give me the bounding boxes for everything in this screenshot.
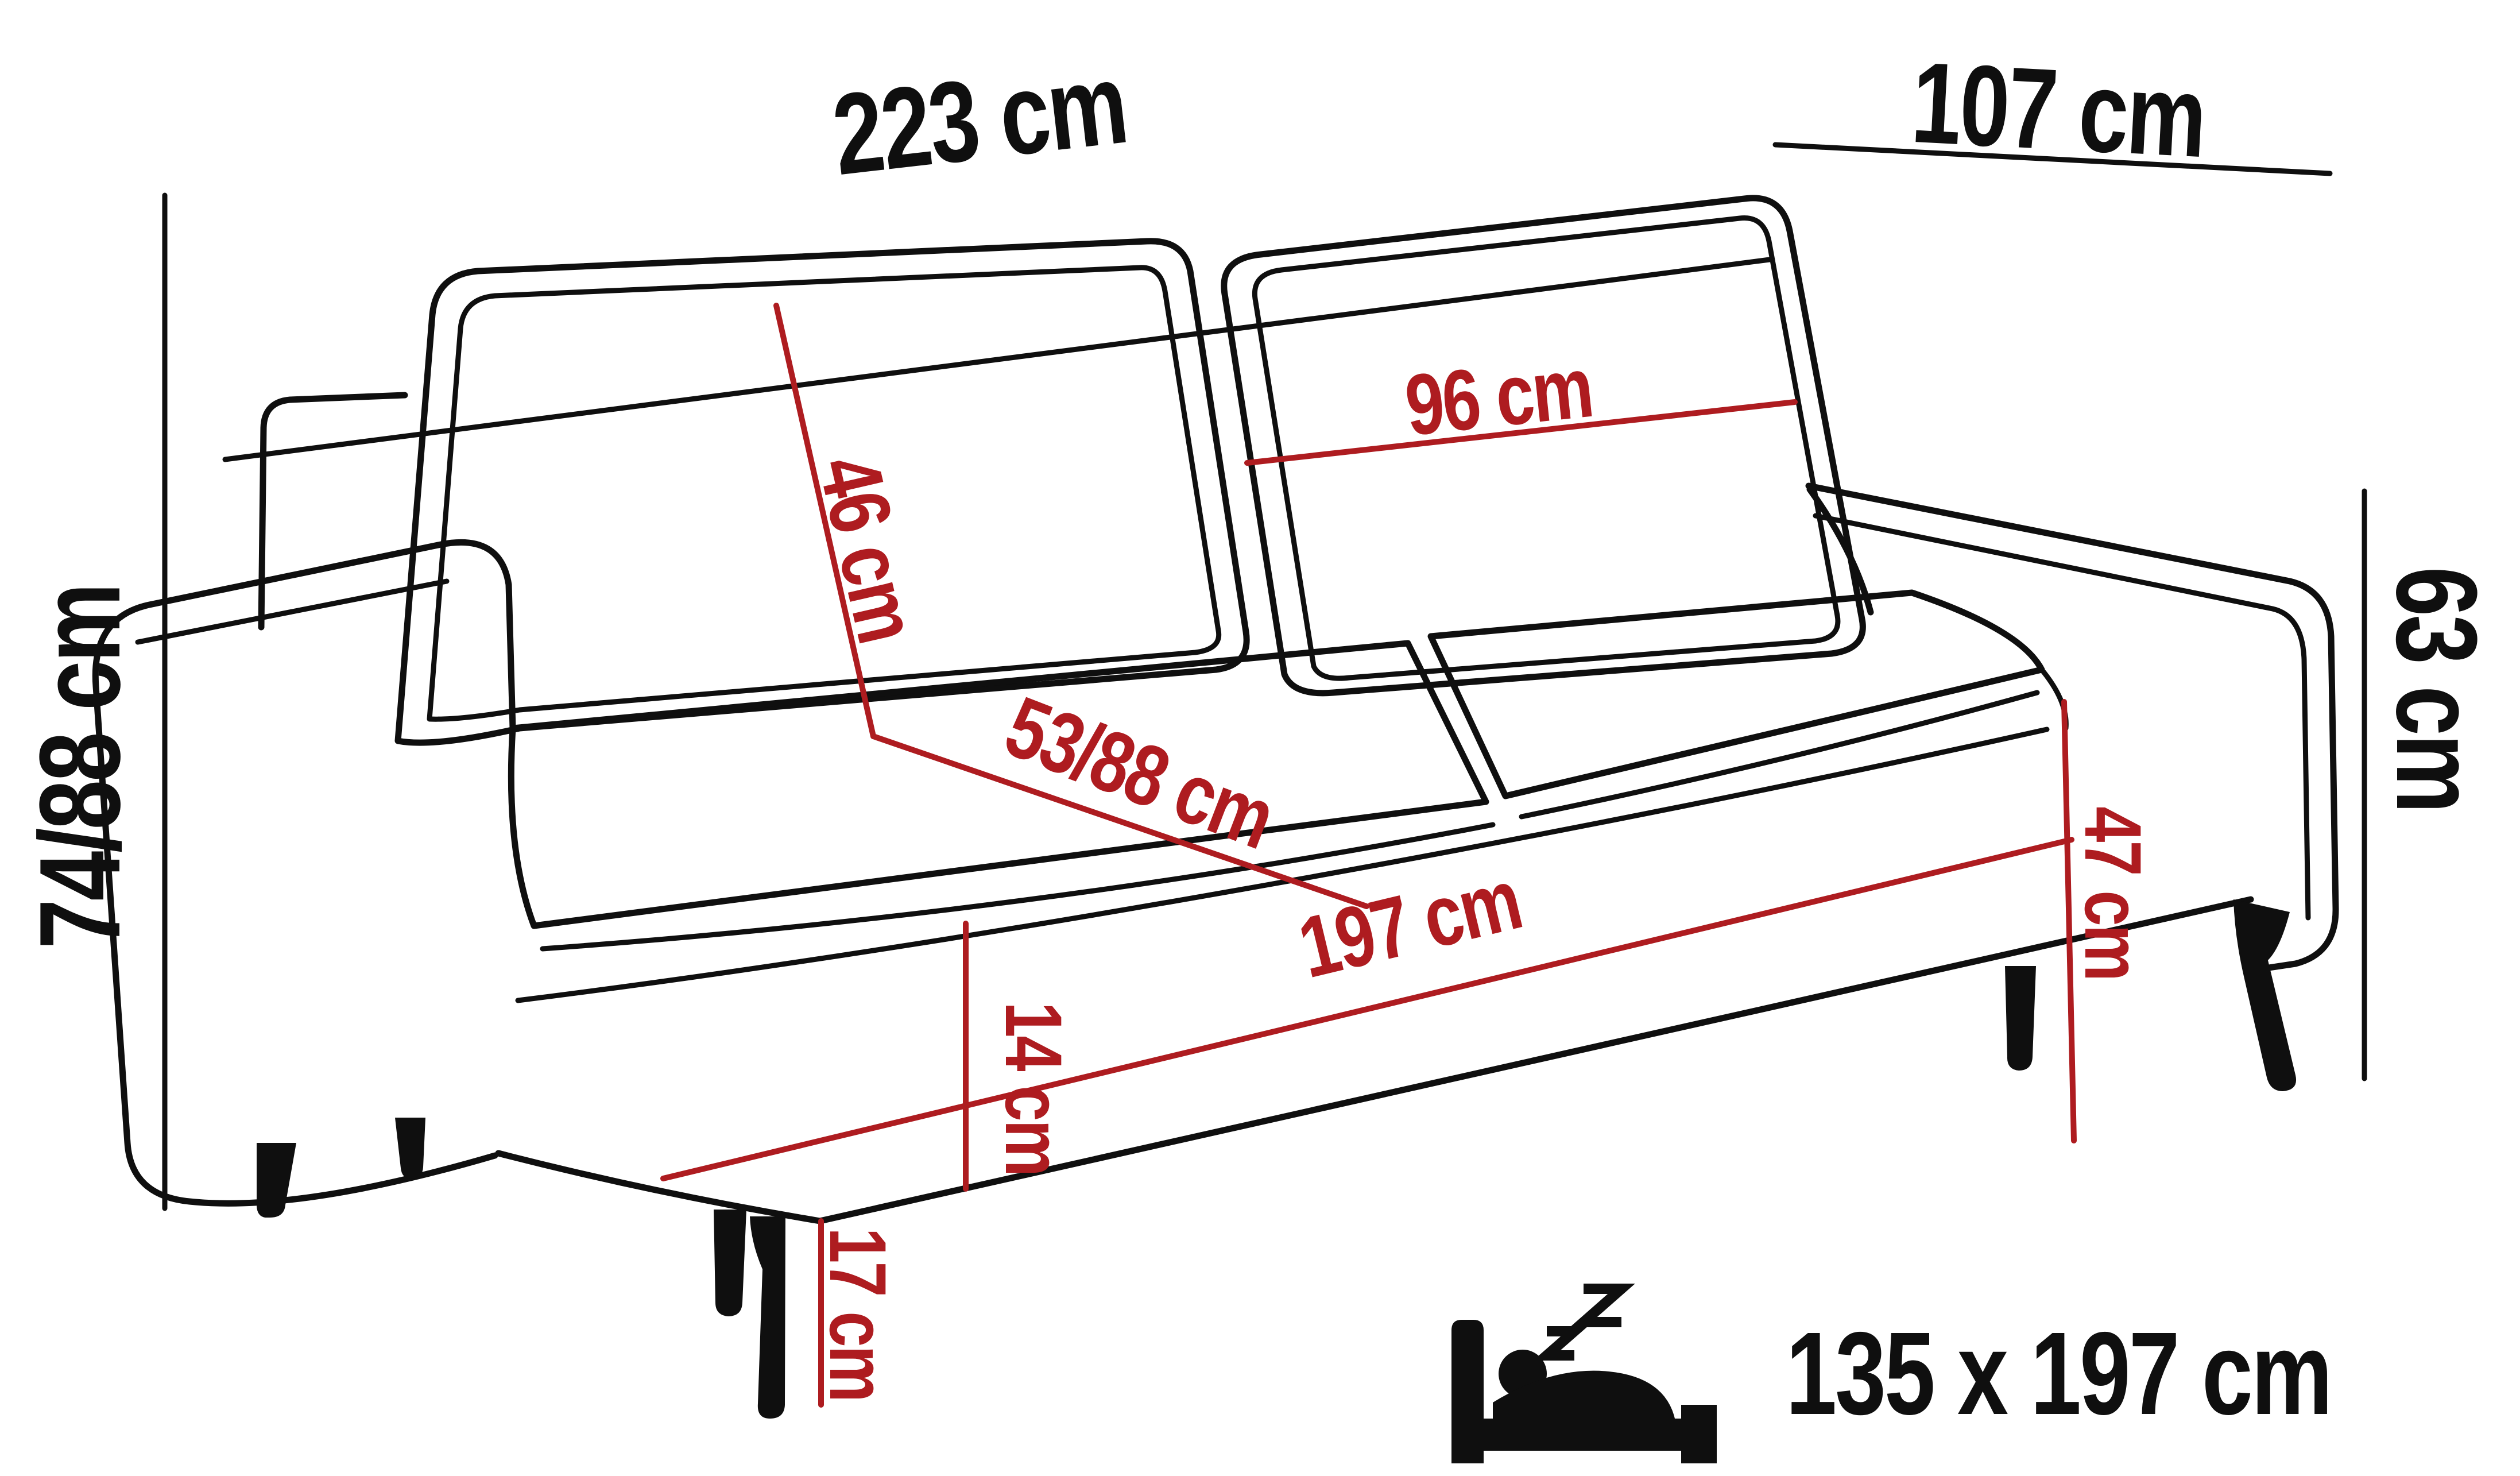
arm-side-height-label: 63 cm <box>2370 567 2502 812</box>
left-front-leg <box>257 1143 296 1218</box>
right-seat-cushion-outline <box>1431 593 2042 796</box>
seat-height-label: 47 cm <box>2066 806 2159 980</box>
middle-front-leg <box>750 1216 785 1419</box>
right-seat-cushion-piping <box>1522 693 2037 817</box>
overall-height-label: 74/88 cm <box>14 585 146 949</box>
sleeping-area-label: 135 x 197 cm <box>1786 1306 2331 1442</box>
bed-headboard <box>1451 1320 1484 1463</box>
right-back-leg <box>2005 966 2036 1071</box>
back-cushion-width-label: 96 cm <box>1401 337 1597 455</box>
base-seam-line <box>518 729 2047 1000</box>
base-front-height-label: 14 cm <box>987 1002 1080 1175</box>
sleep-z-large <box>1584 1289 1621 1322</box>
sleep-z-small <box>1547 1331 1574 1355</box>
sleep-bed-icon <box>1451 1289 1717 1463</box>
bed-mattress <box>1484 1419 1682 1451</box>
right-front-leg <box>2233 899 2296 1091</box>
left-armrest-seam <box>138 581 447 642</box>
sofa-dimension-diagram: 223 cm 107 cm 74/88 cm 63 cm 46 cm 96 cm… <box>0 0 2520 1476</box>
bed-footboard <box>1681 1405 1717 1463</box>
leg-height-label: 17 cm <box>811 1227 904 1401</box>
left-back-leg <box>395 1118 425 1179</box>
left-armrest-outline <box>95 542 513 1203</box>
overall-depth-label: 107 cm <box>1909 37 2208 184</box>
right-back-cushion-outline <box>1224 198 1863 693</box>
sofa-line-art <box>0 0 2520 1476</box>
middle-back-leg <box>714 1210 746 1316</box>
